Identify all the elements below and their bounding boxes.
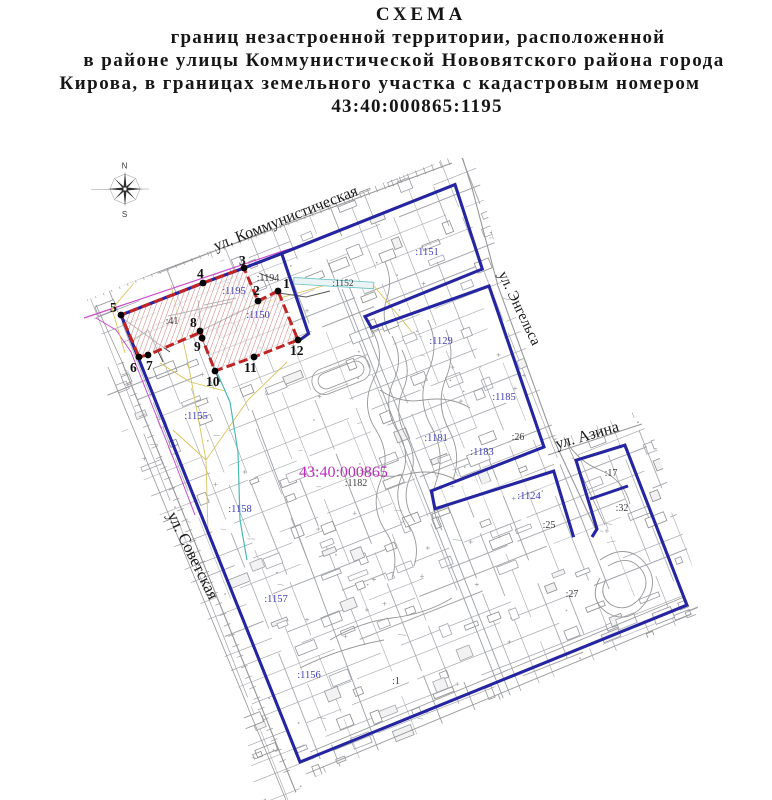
svg-text:S: S [122, 210, 127, 219]
svg-text::1: :1 [392, 676, 400, 687]
svg-text:5: 5 [110, 300, 117, 315]
svg-text:2: 2 [253, 283, 260, 298]
svg-text::26: :26 [512, 432, 525, 443]
svg-text::1155: :1155 [184, 411, 208, 422]
svg-text:3: 3 [239, 253, 246, 268]
svg-text:12: 12 [290, 343, 304, 358]
svg-text:43:40:000865:1195: 43:40:000865:1195 [331, 96, 502, 117]
svg-text::1151: :1151 [415, 247, 439, 258]
svg-text::17: :17 [605, 468, 618, 479]
svg-text::1185: :1185 [492, 392, 516, 403]
svg-text::1194: :1194 [257, 273, 279, 284]
svg-text:8: 8 [190, 315, 197, 330]
svg-text:границ незастроенной территори: границ незастроенной территории, располо… [171, 27, 666, 48]
svg-text::1150: :1150 [246, 310, 270, 321]
svg-text::1124: :1124 [517, 491, 541, 502]
svg-text::41: :41 [166, 316, 179, 327]
svg-text::1183: :1183 [470, 447, 494, 458]
svg-text:1: 1 [283, 276, 290, 291]
svg-text:11: 11 [244, 360, 257, 375]
svg-text:Кирова, в границах земельного: Кирова, в границах земельного участка с … [60, 73, 701, 94]
svg-text:СХЕМА: СХЕМА [376, 4, 466, 25]
svg-text::1156: :1156 [297, 670, 321, 681]
svg-text::25: :25 [543, 520, 556, 531]
svg-text::1129: :1129 [429, 336, 453, 347]
svg-text::1181: :1181 [424, 433, 448, 444]
svg-text:в районе улицы Коммунистическо: в районе улицы Коммунистической Нововятс… [83, 50, 724, 71]
svg-text::32: :32 [616, 503, 629, 514]
svg-text::1157: :1157 [264, 594, 288, 605]
svg-text:10: 10 [206, 374, 220, 389]
svg-text:7: 7 [146, 358, 153, 373]
svg-text::1195: :1195 [222, 286, 246, 297]
svg-text:4: 4 [197, 266, 204, 281]
svg-text::1152: :1152 [332, 279, 354, 289]
svg-text:N: N [122, 162, 128, 171]
svg-text:6: 6 [130, 360, 137, 375]
svg-text::1158: :1158 [228, 504, 252, 515]
svg-text::27: :27 [566, 589, 579, 600]
svg-text:43:40:000865: 43:40:000865 [299, 464, 388, 481]
svg-text:9: 9 [194, 339, 201, 354]
